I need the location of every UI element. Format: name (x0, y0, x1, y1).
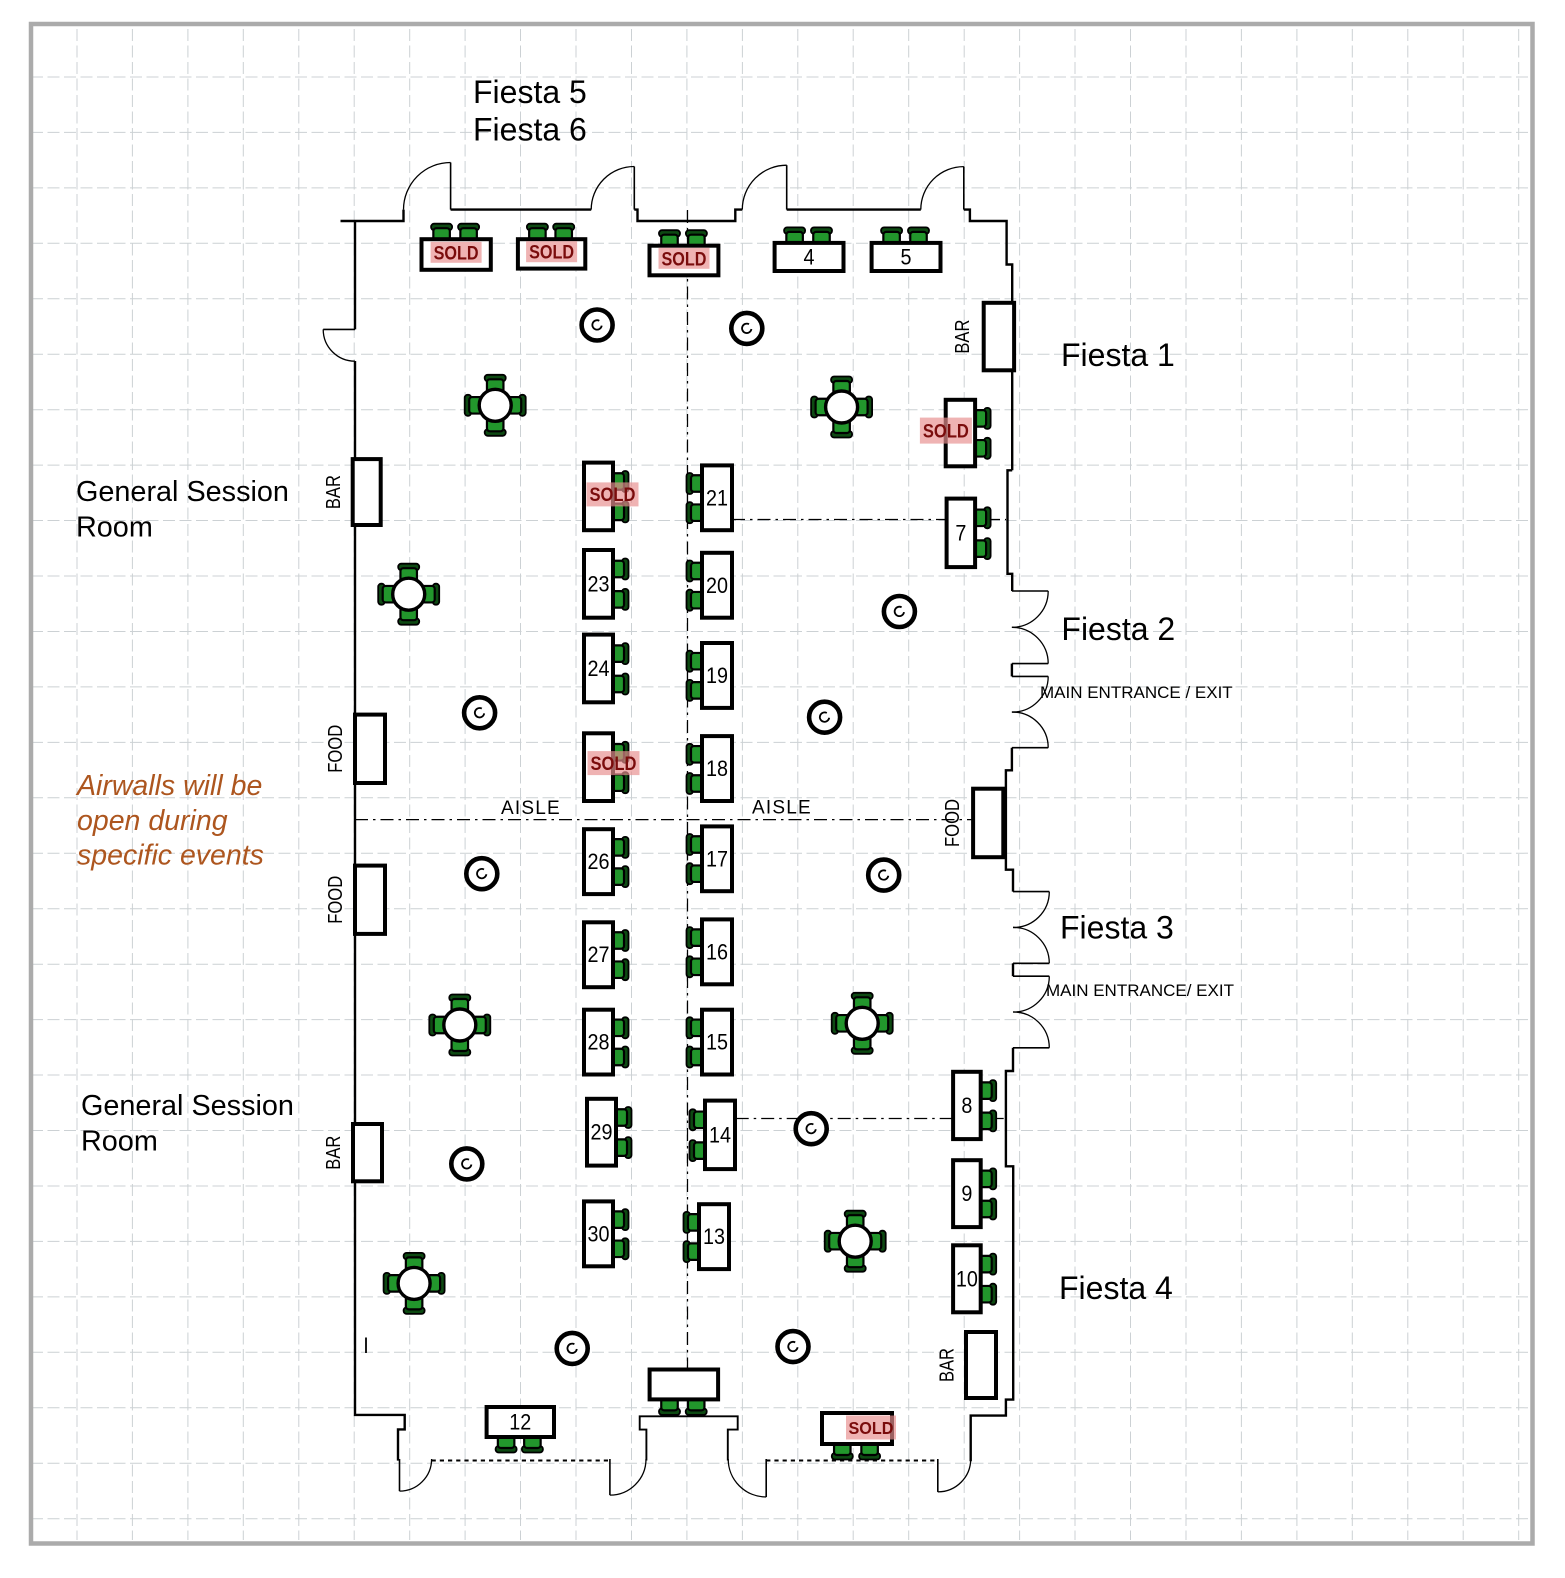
svg-text:27: 27 (588, 942, 610, 967)
svg-text:Fiesta 4: Fiesta 4 (1059, 1270, 1173, 1306)
svg-text:21: 21 (706, 485, 728, 510)
svg-text:15: 15 (706, 1030, 728, 1055)
svg-text:SOLD: SOLD (923, 421, 969, 442)
svg-text:BAR: BAR (937, 1348, 959, 1382)
svg-text:MAIN ENTRANCE / EXIT: MAIN ENTRANCE / EXIT (1040, 683, 1233, 702)
svg-text:4: 4 (804, 244, 815, 269)
svg-text:BAR: BAR (952, 320, 974, 354)
svg-text:Fiesta 1: Fiesta 1 (1061, 337, 1175, 373)
svg-text:Airwalls will be: Airwalls will be (75, 770, 262, 802)
svg-text:30: 30 (588, 1221, 610, 1246)
svg-text:Room: Room (81, 1126, 158, 1158)
svg-text:specific events: specific events (77, 840, 264, 872)
svg-text:Fiesta 5: Fiesta 5 (473, 74, 587, 110)
svg-text:MAIN ENTRANCE/ EXIT: MAIN ENTRANCE/ EXIT (1046, 981, 1234, 1000)
svg-text:open during: open during (77, 805, 228, 837)
svg-text:SOLD: SOLD (590, 485, 636, 506)
svg-text:5: 5 (901, 244, 912, 269)
svg-text:AISLE: AISLE (752, 798, 812, 819)
svg-text:FOOD: FOOD (325, 725, 347, 773)
svg-text:13: 13 (703, 1224, 725, 1249)
svg-text:Fiesta 6: Fiesta 6 (473, 112, 587, 148)
svg-text:8: 8 (961, 1093, 972, 1118)
svg-text:20: 20 (706, 573, 728, 598)
svg-text:9: 9 (961, 1181, 972, 1206)
svg-text:19: 19 (706, 663, 728, 688)
svg-text:29: 29 (591, 1120, 613, 1145)
svg-text:FOOD: FOOD (325, 876, 347, 924)
svg-text:SOLD: SOLD (434, 242, 479, 264)
svg-text:AISLE: AISLE (501, 798, 561, 819)
svg-text:Fiesta 3: Fiesta 3 (1060, 910, 1174, 946)
svg-text:SOLD: SOLD (529, 242, 574, 264)
svg-text:14: 14 (709, 1122, 731, 1147)
svg-text:18: 18 (706, 756, 728, 781)
svg-text:26: 26 (588, 849, 610, 874)
svg-text:10: 10 (956, 1266, 978, 1291)
svg-text:FOOD: FOOD (942, 799, 964, 847)
svg-text:12: 12 (509, 1410, 531, 1435)
svg-text:17: 17 (706, 846, 728, 871)
svg-text:BAR: BAR (323, 475, 345, 509)
svg-text:24: 24 (588, 656, 610, 681)
svg-text:Fiesta 2: Fiesta 2 (1061, 611, 1175, 647)
svg-text:SOLD: SOLD (662, 248, 707, 270)
svg-text:Room: Room (76, 512, 153, 544)
svg-text:SOLD: SOLD (591, 754, 637, 775)
svg-text:General Session: General Session (76, 476, 289, 508)
svg-text:28: 28 (588, 1030, 610, 1055)
svg-text:16: 16 (706, 939, 728, 964)
svg-text:General Session: General Session (81, 1090, 294, 1122)
svg-text:SOLD: SOLD (849, 1418, 894, 1438)
svg-text:BAR: BAR (323, 1136, 345, 1170)
svg-text:7: 7 (955, 520, 966, 545)
svg-text:23: 23 (588, 571, 610, 596)
